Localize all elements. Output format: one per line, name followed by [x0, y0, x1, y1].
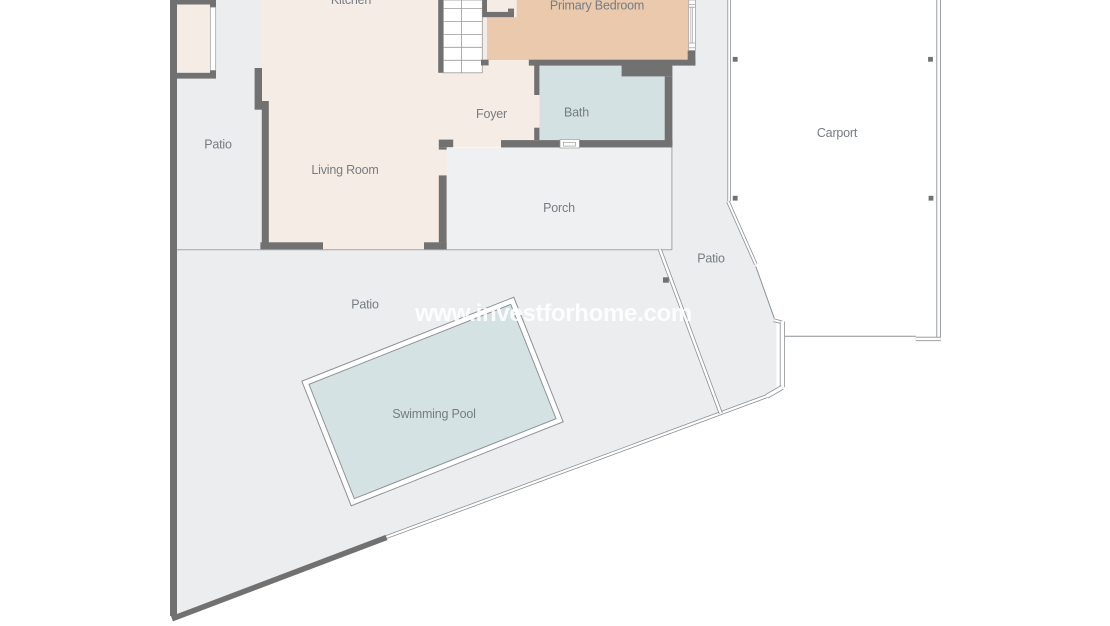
svg-text:Porch: Porch [543, 201, 575, 215]
svg-text:Patio: Patio [697, 251, 725, 265]
svg-text:Living Room: Living Room [311, 163, 378, 177]
svg-text:www.investforhome.com: www.investforhome.com [414, 300, 692, 327]
svg-text:Primary Bedroom: Primary Bedroom [550, 0, 644, 13]
svg-text:Kitchen: Kitchen [331, 0, 372, 7]
svg-text:Foyer: Foyer [476, 107, 507, 121]
svg-text:Patio: Patio [204, 138, 232, 152]
svg-text:Swimming Pool: Swimming Pool [392, 407, 476, 421]
svg-text:Carport: Carport [817, 126, 858, 140]
svg-text:Bath: Bath [564, 106, 589, 120]
svg-text:Patio: Patio [351, 298, 379, 312]
